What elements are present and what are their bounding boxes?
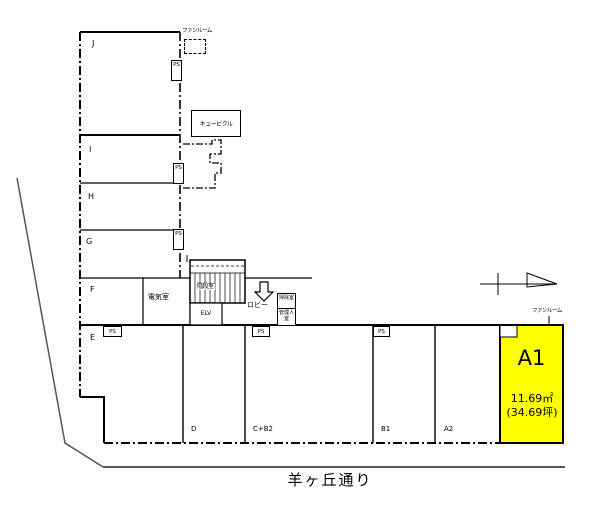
unit-a1-highlight (500, 325, 563, 443)
ps-box-g: PS (173, 229, 184, 250)
floor-plan-canvas: J I H G F E D C+B2 B1 A2 A1 11.69㎡ (34.6… (0, 0, 607, 512)
unit-label-d: D (191, 426, 196, 433)
unit-label-cb2: C+B2 (253, 426, 273, 433)
stairwell-outline (190, 260, 245, 303)
unit-label-b1: B1 (381, 426, 390, 433)
street-name-label: 羊ヶ丘通り (240, 469, 420, 490)
manager-room-box: 管理人室 (277, 308, 296, 326)
unit-label-i: I (89, 146, 91, 154)
fan-room-label-top: ファンルーム (182, 29, 212, 35)
ps-box-cb2: PS (252, 326, 270, 337)
unit-label-f: F (90, 286, 95, 294)
unit-label-a2: A2 (444, 426, 453, 433)
fan-room-label-right: ファンルーム (532, 309, 562, 315)
cleaning-room-box: 掃除室 (277, 293, 296, 309)
unit-label-h: H (88, 193, 94, 201)
unit-a1-area-sqm: 11.69㎡ (493, 392, 571, 406)
unit-label-g: G (86, 238, 92, 246)
stair-room-label: 階段室 (196, 284, 215, 290)
floorplan-drawing (0, 0, 607, 512)
entrance-arrow-icon (255, 282, 273, 301)
wall-step (80, 397, 104, 443)
section-marker-icon (480, 273, 557, 295)
elevator-label: ELV (190, 303, 222, 325)
lobby-label: ロビー (247, 302, 268, 309)
unit-a1-notch (500, 325, 517, 337)
ps-box-e: PS (103, 326, 122, 337)
ps-box-i: PS (173, 163, 184, 184)
ps-box-b1: PS (373, 326, 390, 337)
ps-box-j: PS (171, 60, 182, 81)
unit-label-j: J (92, 40, 94, 48)
electric-room-label: 電気室 (148, 294, 169, 301)
unit-a1-label: A1 (500, 346, 563, 370)
site-boundary-line (17, 178, 103, 467)
exterior-shaft-outline (183, 140, 221, 188)
fan-room-box-top (184, 39, 206, 54)
cubicle-box: キュービクル (191, 110, 241, 137)
unit-a1-area-tsubo: (34.69坪) (491, 406, 573, 420)
unit-label-e: E (90, 334, 95, 342)
